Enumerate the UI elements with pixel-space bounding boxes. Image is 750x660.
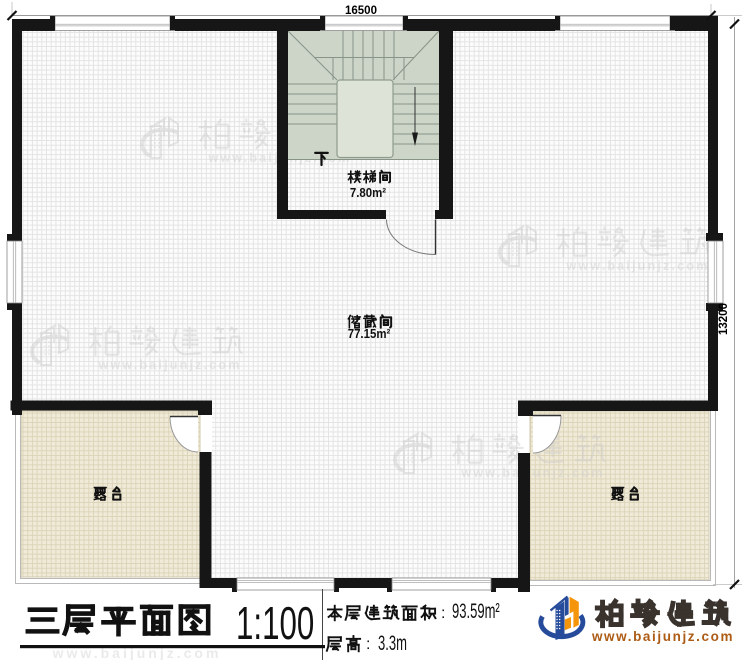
svg-text:www.baijunjz.com: www.baijunjz.com xyxy=(565,259,709,273)
svg-text::: : xyxy=(366,636,370,653)
svg-text:13200: 13200 xyxy=(718,303,730,335)
svg-text::: : xyxy=(441,605,445,622)
svg-text:www.baijunjz.com: www.baijunjz.com xyxy=(97,358,241,372)
svg-text:www.baijunjz.com: www.baijunjz.com xyxy=(460,466,604,480)
svg-text:93.59m²: 93.59m² xyxy=(452,599,500,623)
svg-text:77.15m²: 77.15m² xyxy=(348,326,391,341)
svg-text:7.80m²: 7.80m² xyxy=(350,185,386,200)
svg-text:16500: 16500 xyxy=(345,5,377,17)
svg-text:www.baijunjz.com: www.baijunjz.com xyxy=(591,629,734,644)
svg-text:3.3m: 3.3m xyxy=(378,631,407,655)
svg-text:1:100: 1:100 xyxy=(236,598,314,649)
